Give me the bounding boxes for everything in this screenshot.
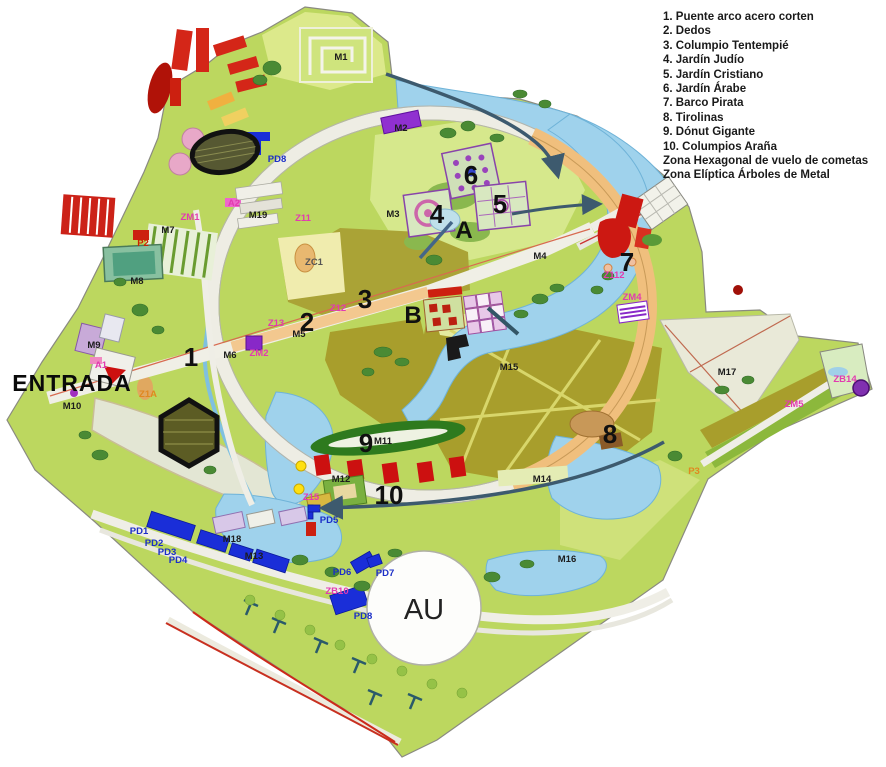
map-label-3: 3 [358, 284, 372, 314]
legend-item: Zona Elíptica Árboles de Metal [663, 168, 883, 182]
map-label-m18: M18 [223, 534, 241, 545]
map-label-zc1: ZC1 [305, 257, 324, 268]
legend-item: Zona Hexagonal de vuelo de cometas [663, 154, 883, 168]
map-label-zb10: ZB10 [325, 586, 348, 597]
map-label-pd8: PD8 [354, 611, 372, 622]
zm4-marker [617, 301, 649, 323]
map-label-m14: M14 [533, 474, 552, 485]
map-label-z15: Z15 [303, 492, 320, 503]
map-label-m4: M4 [533, 251, 547, 262]
map-label-zm4: ZM4 [623, 292, 643, 303]
map-label-m7: M7 [161, 225, 174, 236]
map-label-m13: M13 [245, 551, 263, 562]
map-label-pd6: PD6 [333, 567, 351, 578]
map-label-zb14: ZB14 [833, 374, 857, 385]
map-label-p2: P2 [137, 238, 149, 249]
map-label-m10: M10 [63, 401, 81, 412]
map-label-z13: Z13 [268, 318, 284, 329]
legend-item: 3. Columpio Tentempié [663, 39, 883, 53]
map-label-m2: M2 [394, 123, 407, 134]
map-label-a: A [455, 217, 472, 244]
map-label-m15: M15 [500, 362, 519, 373]
map-label-au: AU [404, 594, 444, 626]
map-label-m9: M9 [87, 340, 100, 351]
map-label-10: 10 [375, 480, 404, 510]
map-label-m5: M5 [292, 329, 306, 340]
map-label-zm2: ZM2 [250, 348, 269, 359]
map-label-z112: Z112 [603, 270, 624, 281]
park-map-screenshot: 12345678910ABAUENTRADAM1M2M3M4M5M6M7M8M9… [0, 0, 886, 767]
kite-zone-hexagon [161, 400, 217, 466]
map-label-8: 8 [603, 419, 617, 449]
map-label-1: 1 [184, 342, 198, 372]
map-label-pd4: PD4 [169, 555, 188, 566]
legend-item: 8. Tirolinas [663, 111, 883, 125]
map-label-pd5: PD5 [320, 515, 339, 526]
map-label-m19: M19 [249, 210, 267, 221]
legend-item: 1. Puente arco acero corten [663, 10, 883, 24]
map-label-zm5: ZM5 [785, 399, 805, 410]
map-label-z1a: Z1A [139, 389, 157, 400]
map-label-m11: M11 [374, 436, 393, 447]
m19-structures [235, 182, 282, 229]
legend-item: 2. Dedos [663, 24, 883, 38]
map-label-9: 9 [359, 428, 373, 458]
map-label-m17: M17 [718, 367, 736, 378]
map-label-b: B [404, 302, 421, 329]
map-label-m12: M12 [332, 474, 350, 485]
map-label-m8: M8 [130, 276, 143, 287]
map-label-pd8: PD8 [268, 154, 286, 165]
map-label-entrada: ENTRADA [12, 370, 131, 396]
map-label-zm1: ZM1 [181, 212, 201, 223]
map-label-m16: M16 [558, 554, 576, 565]
map-label-m3: M3 [386, 209, 399, 220]
legend-item: 10. Columpios Araña [663, 140, 883, 154]
map-label-z11: Z11 [295, 213, 312, 224]
legend: 1. Puente arco acero corten 2. Dedos 3. … [663, 10, 883, 183]
map-label-5: 5 [493, 189, 507, 219]
map-label-z12: Z12 [330, 303, 346, 314]
map-label-pd7: PD7 [376, 568, 394, 579]
map-label-m1: M1 [334, 52, 348, 63]
legend-item: 9. Dónut Gigante [663, 125, 883, 139]
map-label-a1: A1 [95, 360, 108, 371]
map-label-pd1: PD1 [130, 526, 149, 537]
legend-item: 4. Jardín Judío [663, 53, 883, 67]
map-label-a2: A2 [228, 198, 240, 209]
map-label-m6: M6 [223, 350, 236, 361]
map-label-6: 6 [464, 160, 478, 190]
map-label-p3: P3 [688, 466, 700, 477]
map-label-4: 4 [430, 199, 445, 229]
legend-item: 7. Barco Pirata [663, 96, 883, 110]
legend-item: 5. Jardín Cristiano [663, 68, 883, 82]
legend-item: 6. Jardín Árabe [663, 82, 883, 96]
